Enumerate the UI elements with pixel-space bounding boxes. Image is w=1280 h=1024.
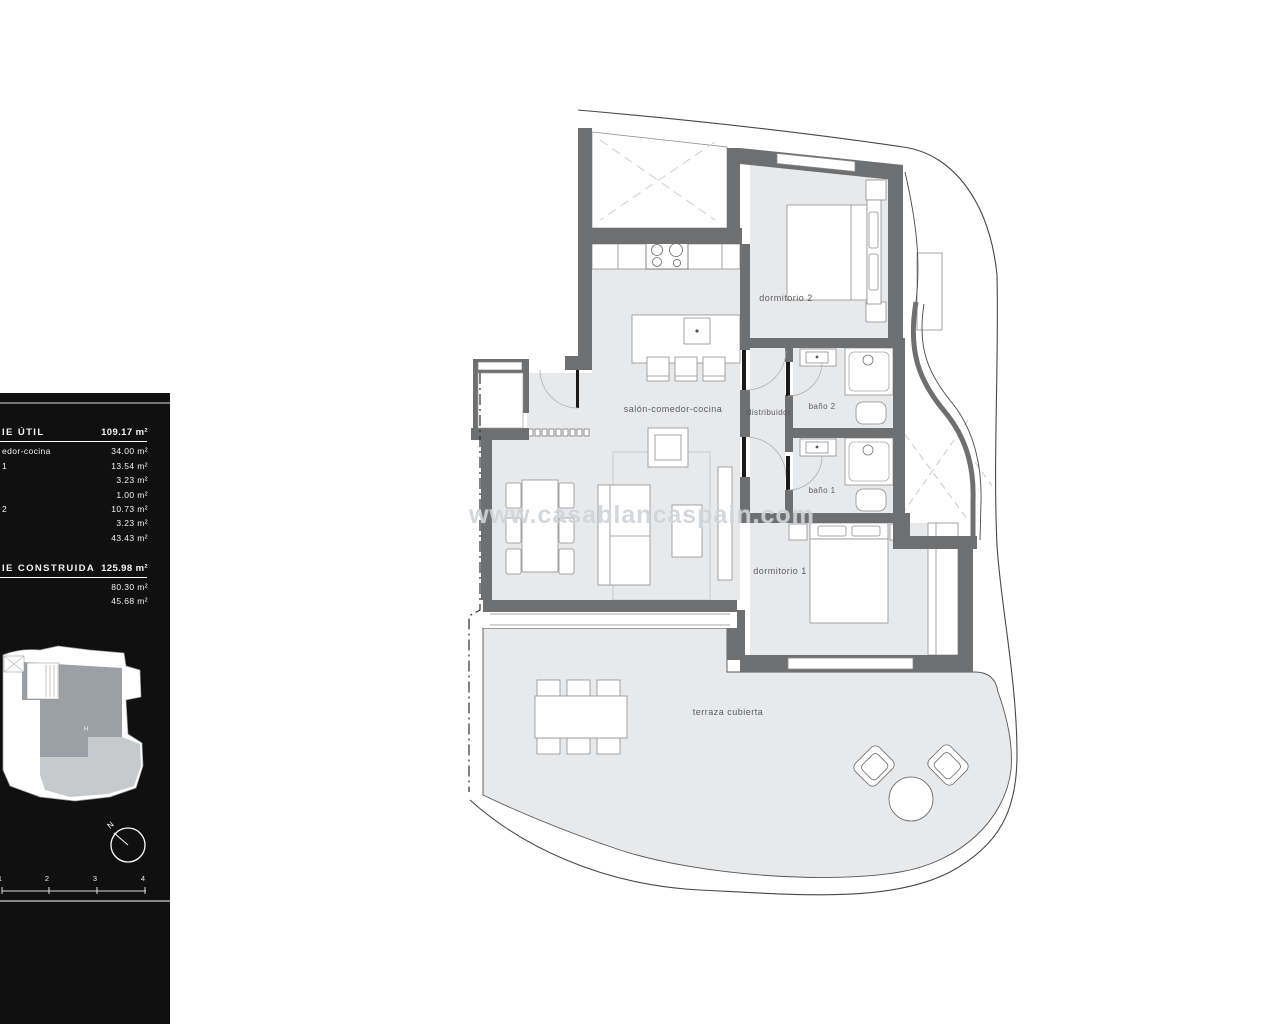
dormitorio2-label: dormitorio 2 (759, 293, 813, 303)
floorplan-page: IE ÚTIL 109.17 m² edor-cocina 34.00 m² 1… (0, 0, 1280, 1024)
watermark: www.casablancaspain.com (452, 501, 832, 530)
dormitorio1-window (788, 658, 913, 669)
kitchen-island (632, 315, 740, 381)
armchair (648, 428, 688, 467)
chair (567, 680, 590, 696)
nightstand (866, 302, 886, 322)
stool (675, 357, 697, 381)
stool (703, 357, 725, 381)
compass-north-label: N (106, 820, 116, 831)
keyplan: H (3, 646, 143, 801)
door-leaf (786, 456, 790, 490)
door-leaf (742, 350, 746, 390)
chair (559, 549, 574, 574)
vestibule-window (478, 362, 522, 370)
stool (647, 357, 669, 381)
toilet (856, 489, 886, 511)
chair (597, 680, 620, 696)
scale-label: 1 (0, 874, 2, 883)
scale-label: 4 (141, 874, 145, 883)
distribuidor-label: distribuidor (747, 408, 791, 417)
dormitorio1-label: dormitorio 1 (753, 566, 807, 576)
distribuidor-floor (750, 348, 785, 513)
keyplan-unit-label: H (83, 726, 88, 733)
chair (597, 738, 620, 754)
door-leaf (786, 362, 790, 396)
chair (506, 549, 521, 574)
sidebar-graphics: H N 1 2 3 4 (0, 403, 170, 901)
exterior-unit-box (917, 253, 942, 330)
terrace-dining-set (535, 680, 627, 754)
pillow (869, 254, 878, 290)
chair (537, 738, 560, 754)
pillow (869, 212, 878, 248)
door-leaf (742, 437, 746, 477)
chair (537, 680, 560, 696)
bano1-label: baño 1 (809, 486, 836, 495)
terraza-label: terraza cubierta (693, 707, 764, 717)
pillow (852, 526, 880, 536)
nightstand (866, 180, 886, 200)
round-table (889, 777, 933, 821)
cooktop-icon (646, 242, 688, 269)
chair (567, 738, 590, 754)
scale-label: 2 (45, 874, 49, 883)
bano2-label: baño 2 (809, 402, 836, 411)
salon-label: salón-comedor-cocina (624, 404, 723, 414)
scale-bar: 1 2 3 4 (0, 874, 146, 894)
toilet (856, 402, 886, 424)
salon-glass-front (483, 612, 737, 628)
kitchen-counter (592, 242, 740, 269)
compass-icon: N (106, 820, 145, 862)
sofa (598, 485, 650, 585)
stairwell-void (592, 132, 727, 228)
exterior-hatch-zone (898, 420, 992, 520)
entry-door-leaf (576, 370, 579, 408)
scale-label: 3 (93, 874, 97, 883)
